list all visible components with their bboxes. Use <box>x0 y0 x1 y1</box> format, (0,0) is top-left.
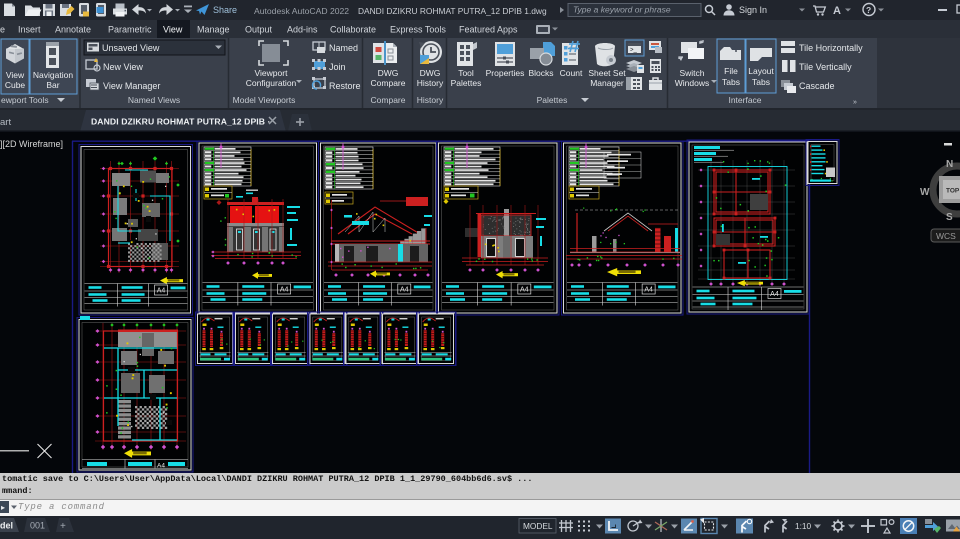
svg-text:Output: Output <box>245 25 273 35</box>
svg-text:N: N <box>946 159 953 170</box>
svg-text:Viewport: Viewport <box>255 68 289 78</box>
svg-text:Insert: Insert <box>18 25 41 35</box>
svg-text:Sign In: Sign In <box>739 5 767 15</box>
svg-text:New View: New View <box>103 62 143 72</box>
svg-text:▸: ▸ <box>1 503 5 512</box>
svg-text:Palettes: Palettes <box>451 78 482 88</box>
svg-text:DWG: DWG <box>378 68 399 78</box>
svg-text:Switch: Switch <box>679 68 704 78</box>
svg-text:History: History <box>417 78 444 88</box>
svg-text:>_: >_ <box>630 48 638 54</box>
svg-text:Model Viewports: Model Viewports <box>233 95 296 105</box>
svg-text:ewport Tools: ewport Tools <box>1 95 49 105</box>
svg-text:A4: A4 <box>520 287 529 294</box>
svg-text:Restore: Restore <box>329 81 361 91</box>
svg-text:Properties: Properties <box>486 68 525 78</box>
svg-text:Windows: Windows <box>675 78 709 88</box>
svg-text:Featured Apps: Featured Apps <box>459 25 518 35</box>
svg-text:Bar: Bar <box>46 80 59 90</box>
svg-text:?: ? <box>866 5 871 15</box>
svg-text:View Manager: View Manager <box>103 81 160 91</box>
svg-text:MODEL: MODEL <box>523 521 553 531</box>
svg-text:001: 001 <box>30 521 45 531</box>
svg-text:art: art <box>0 117 11 128</box>
svg-text:Blocks: Blocks <box>528 68 553 78</box>
svg-text:Palettes: Palettes <box>537 95 568 105</box>
svg-text:Annotate: Annotate <box>55 25 91 35</box>
svg-text:S: S <box>946 212 953 223</box>
svg-text:A4: A4 <box>644 287 653 294</box>
svg-text:View: View <box>6 70 25 80</box>
svg-text:Collaborate: Collaborate <box>330 25 376 35</box>
svg-text:DANDI DZIKRU ROHMAT PUTRA_12 D: DANDI DZIKRU ROHMAT PUTRA_12 DPIB · <box>91 117 271 127</box>
svg-text:del: del <box>0 521 13 531</box>
svg-text:Named Views: Named Views <box>128 95 180 105</box>
svg-text:Join: Join <box>329 62 346 72</box>
svg-text:Named: Named <box>329 43 358 53</box>
svg-text:Manager: Manager <box>590 78 624 88</box>
svg-text:File: File <box>724 66 738 76</box>
svg-text:Add-ins: Add-ins <box>287 25 318 35</box>
svg-text:1:10: 1:10 <box>795 521 812 531</box>
svg-text:Layout: Layout <box>748 66 774 76</box>
svg-text:Compare: Compare <box>371 95 406 105</box>
svg-text:Sheet Set: Sheet Set <box>588 68 626 78</box>
svg-text:Tabs: Tabs <box>722 77 740 87</box>
svg-text:Unsaved View: Unsaved View <box>102 43 160 53</box>
svg-text:Tile Vertically: Tile Vertically <box>799 62 852 72</box>
svg-text:W: W <box>920 187 930 198</box>
svg-text:A4: A4 <box>157 288 166 295</box>
svg-text:Compare: Compare <box>371 78 406 88</box>
svg-text:Count: Count <box>560 68 583 78</box>
svg-text:»: » <box>853 99 857 106</box>
svg-text:Configuration: Configuration <box>246 78 297 88</box>
svg-text:Manage: Manage <box>197 25 230 35</box>
svg-text:A4: A4 <box>400 287 409 294</box>
svg-text:Tabs: Tabs <box>752 77 770 87</box>
svg-text:A4: A4 <box>280 287 289 294</box>
svg-text:View: View <box>163 25 183 35</box>
svg-text:DWG: DWG <box>420 68 441 78</box>
svg-text:History: History <box>417 95 444 105</box>
svg-text:A4: A4 <box>157 463 165 470</box>
svg-text:Express Tools: Express Tools <box>390 25 446 35</box>
svg-text:WCS: WCS <box>936 231 956 241</box>
svg-text:Tile Horizontally: Tile Horizontally <box>799 43 863 53</box>
svg-text:A: A <box>833 5 841 17</box>
svg-text:Type a keyword or phrase: Type a keyword or phrase <box>573 5 671 15</box>
svg-text:TOP: TOP <box>946 188 960 195</box>
svg-text:Interface: Interface <box>728 95 761 105</box>
svg-text:Tool: Tool <box>458 68 474 78</box>
svg-text:Parametric: Parametric <box>108 25 152 35</box>
svg-text:A4: A4 <box>770 291 779 298</box>
svg-text:Cascade: Cascade <box>799 81 835 91</box>
svg-text:+: + <box>60 521 66 532</box>
svg-text:Share: Share <box>213 5 237 15</box>
svg-text:][2D Wireframe]: ][2D Wireframe] <box>0 139 63 149</box>
svg-text:Cube: Cube <box>5 80 26 90</box>
svg-text:Navigation: Navigation <box>33 70 73 80</box>
svg-text:e: e <box>0 25 5 35</box>
